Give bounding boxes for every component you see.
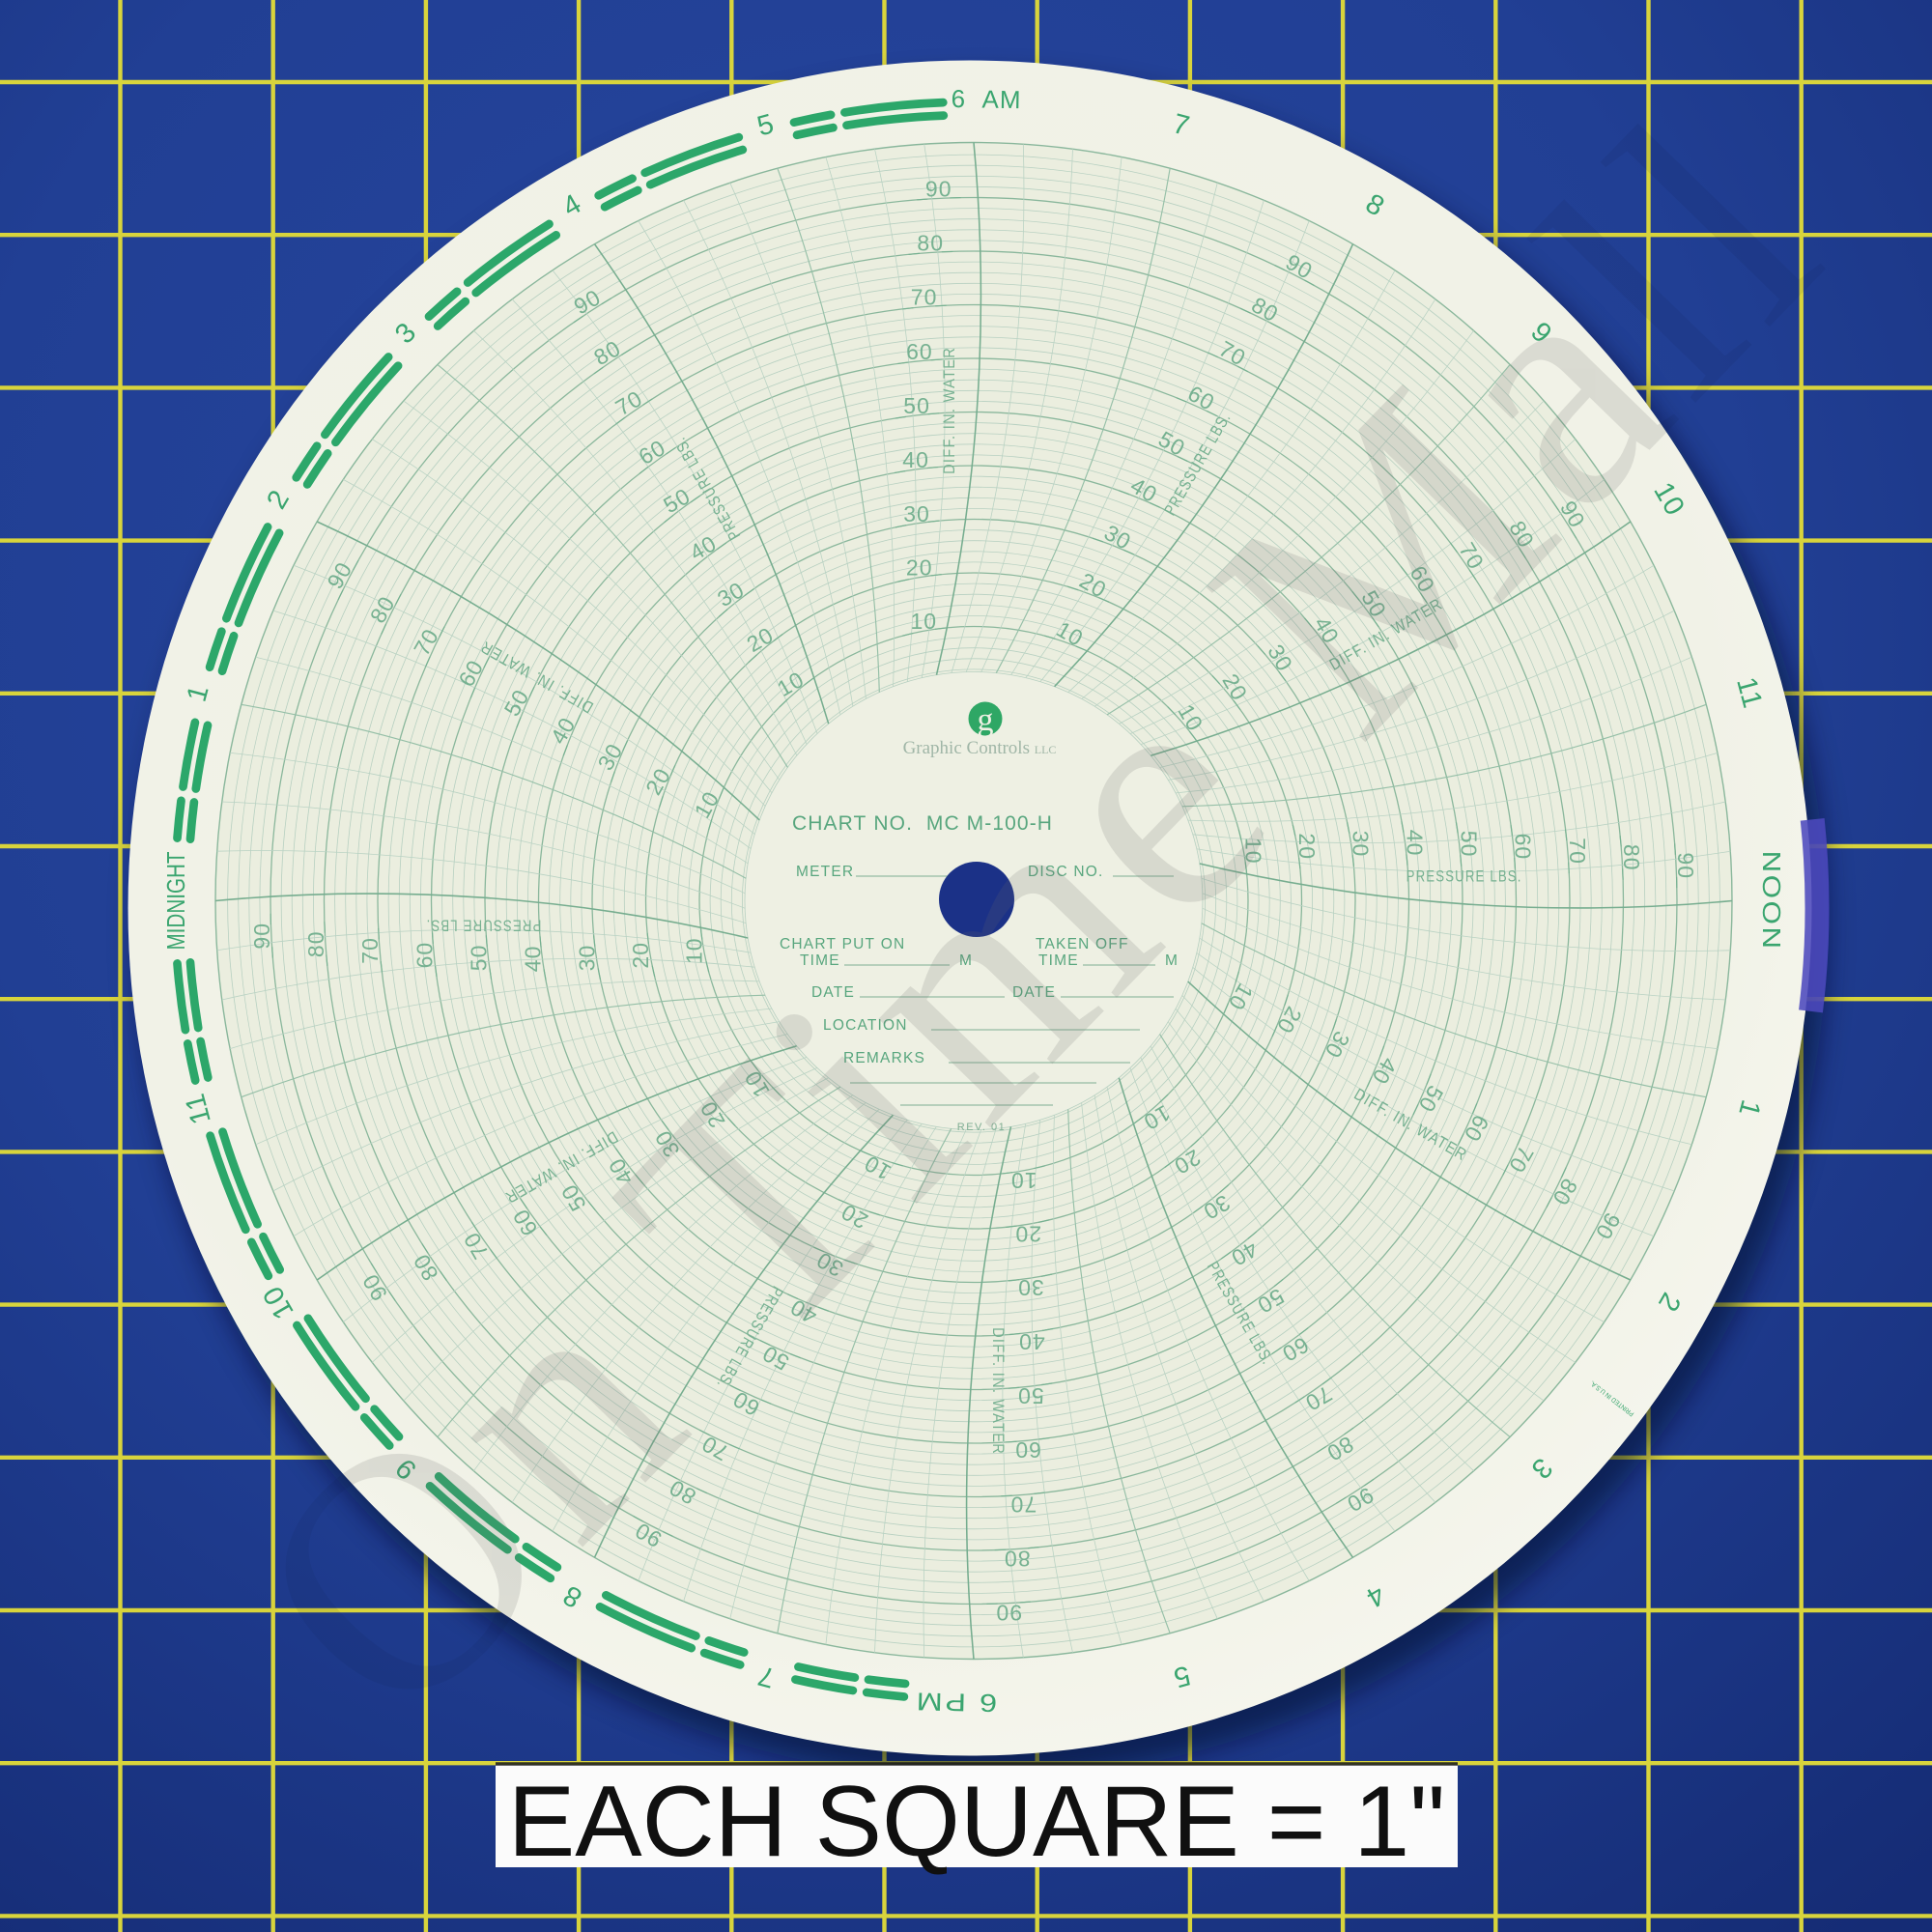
svg-text:PRESSURE LBS.: PRESSURE LBS. xyxy=(425,917,541,935)
svg-text:60: 60 xyxy=(412,942,437,969)
svg-text:6 AM: 6 AM xyxy=(951,84,1021,114)
svg-text:50: 50 xyxy=(466,945,491,972)
svg-text:40: 40 xyxy=(902,447,929,472)
svg-text:90: 90 xyxy=(249,923,274,950)
svg-text:40: 40 xyxy=(1018,1329,1045,1354)
svg-text:70: 70 xyxy=(1565,838,1590,865)
svg-text:70: 70 xyxy=(1010,1492,1037,1517)
svg-text:70: 70 xyxy=(911,285,938,310)
svg-text:NOON: NOON xyxy=(1757,851,1786,952)
svg-text:40: 40 xyxy=(521,946,546,973)
svg-text:DIFF. IN. WATER: DIFF. IN. WATER xyxy=(989,1327,1008,1455)
svg-text:90: 90 xyxy=(996,1601,1023,1626)
svg-text:90: 90 xyxy=(1673,852,1698,879)
svg-text:60: 60 xyxy=(1511,834,1536,861)
svg-text:20: 20 xyxy=(1015,1221,1042,1246)
svg-text:70: 70 xyxy=(357,937,383,964)
svg-text:20: 20 xyxy=(628,942,653,969)
svg-text:6 PM: 6 PM xyxy=(914,1687,998,1718)
svg-text:60: 60 xyxy=(1014,1437,1041,1463)
svg-text:30: 30 xyxy=(1017,1275,1044,1300)
svg-text:DIFF. IN. WATER: DIFF. IN. WATER xyxy=(940,347,958,474)
svg-text:80: 80 xyxy=(1004,1547,1031,1572)
svg-text:MIDNIGHT: MIDNIGHT xyxy=(161,851,190,950)
svg-text:40: 40 xyxy=(1403,830,1428,857)
svg-text:30: 30 xyxy=(903,501,930,526)
svg-text:20: 20 xyxy=(906,555,933,581)
svg-text:80: 80 xyxy=(917,231,944,256)
svg-text:60: 60 xyxy=(906,339,933,364)
svg-text:90: 90 xyxy=(925,176,952,201)
svg-text:PRESSURE LBS.: PRESSURE LBS. xyxy=(1406,867,1522,886)
svg-text:50: 50 xyxy=(1457,831,1482,858)
svg-text:30: 30 xyxy=(574,945,599,972)
svg-text:50: 50 xyxy=(1017,1383,1044,1408)
svg-text:10: 10 xyxy=(682,937,707,964)
svg-text:10: 10 xyxy=(911,609,938,634)
svg-text:50: 50 xyxy=(903,393,930,418)
svg-text:80: 80 xyxy=(1619,844,1644,871)
svg-text:80: 80 xyxy=(303,931,328,958)
svg-text:EACH SQUARE = 1": EACH SQUARE = 1" xyxy=(508,1766,1445,1878)
